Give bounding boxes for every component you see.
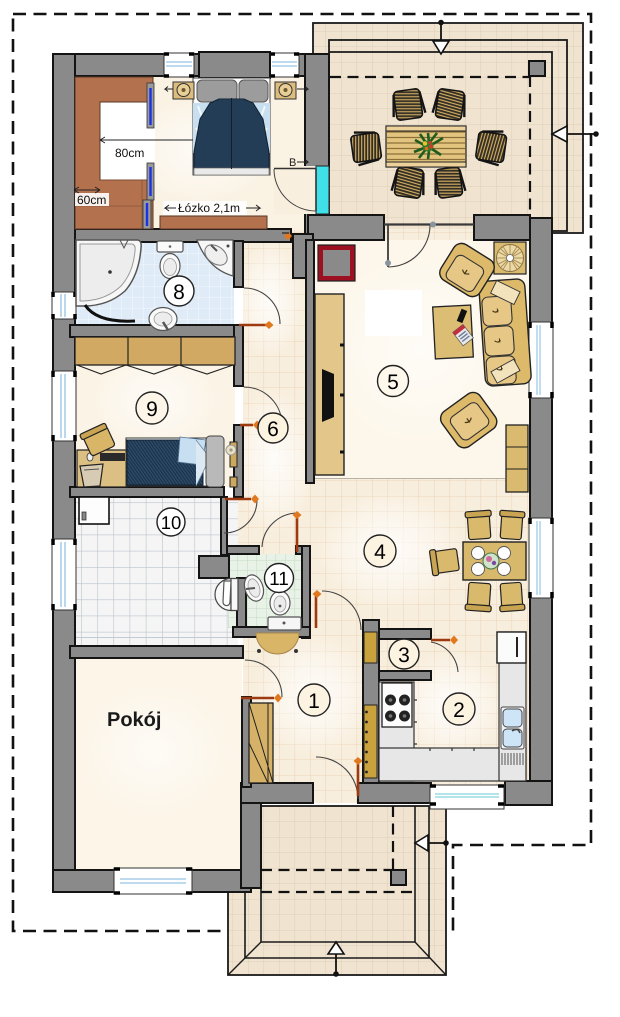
svg-text:8: 8 xyxy=(173,281,185,304)
svg-text:4: 4 xyxy=(374,541,386,564)
svg-text:2: 2 xyxy=(453,699,465,722)
svg-text:Łózko 2,1m: Łózko 2,1m xyxy=(178,201,240,215)
svg-text:3: 3 xyxy=(398,644,410,667)
svg-text:9: 9 xyxy=(146,398,158,421)
svg-text:80cm: 80cm xyxy=(115,146,144,160)
svg-text:Pokój: Pokój xyxy=(107,709,161,731)
svg-text:6: 6 xyxy=(267,418,279,441)
svg-text:1: 1 xyxy=(308,690,320,713)
svg-text:5: 5 xyxy=(387,371,399,394)
svg-text:10: 10 xyxy=(161,512,182,533)
svg-text:11: 11 xyxy=(269,569,289,590)
svg-text:B: B xyxy=(289,157,296,169)
svg-text:60cm: 60cm xyxy=(77,193,106,207)
